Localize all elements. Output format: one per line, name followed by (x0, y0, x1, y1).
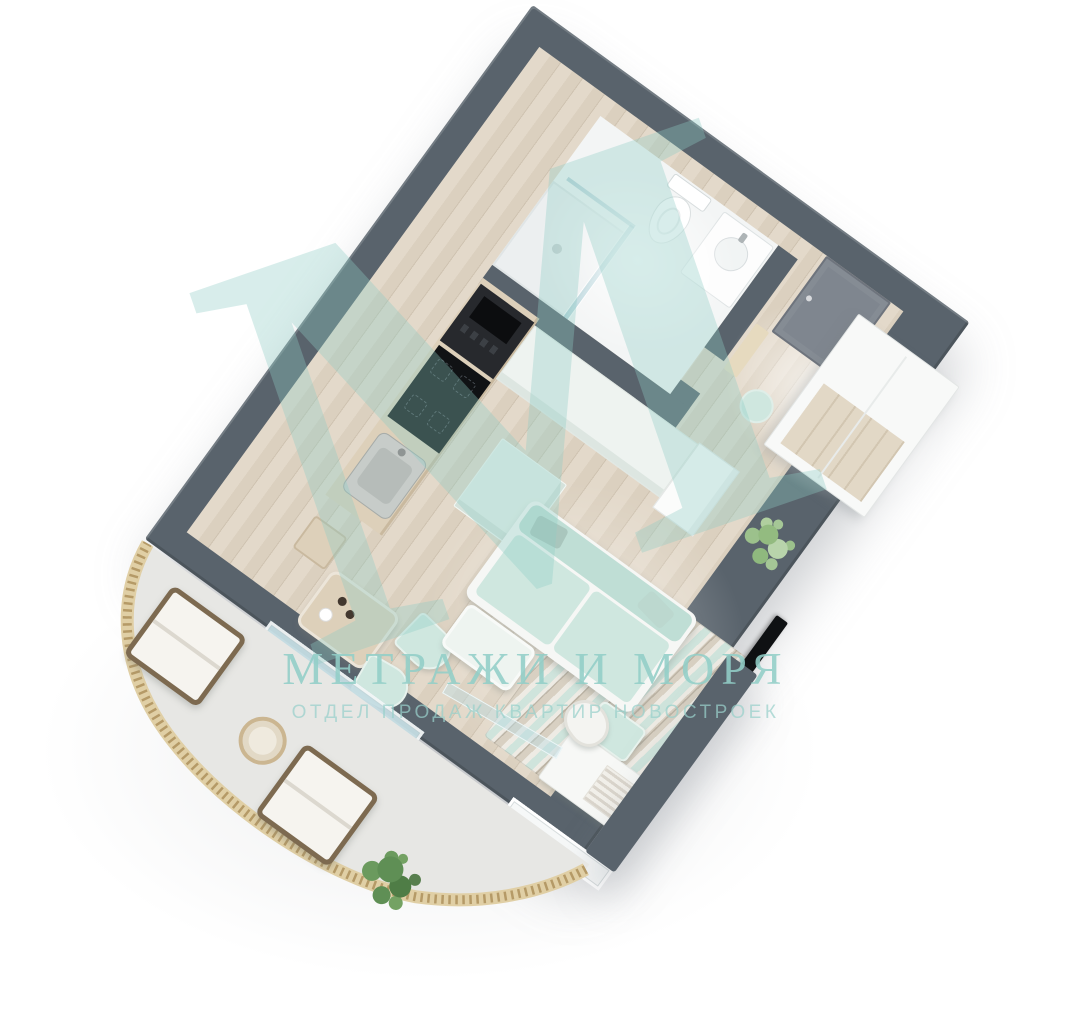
burner (452, 374, 477, 399)
burner (426, 410, 451, 435)
indoor-plant (754, 521, 782, 549)
apartment-scene (0, 0, 1054, 1017)
cup (344, 608, 357, 621)
burner (429, 358, 454, 383)
lounge-chair-split (283, 779, 352, 830)
lounge-chair-split (152, 619, 221, 670)
cup (336, 595, 349, 608)
burner (403, 393, 428, 418)
floorplan-render: М МЕТРАЖИ И МОРЯ ОТДЕЛ ПРОДАЖ КВАРТИР НО… (0, 0, 1071, 1017)
